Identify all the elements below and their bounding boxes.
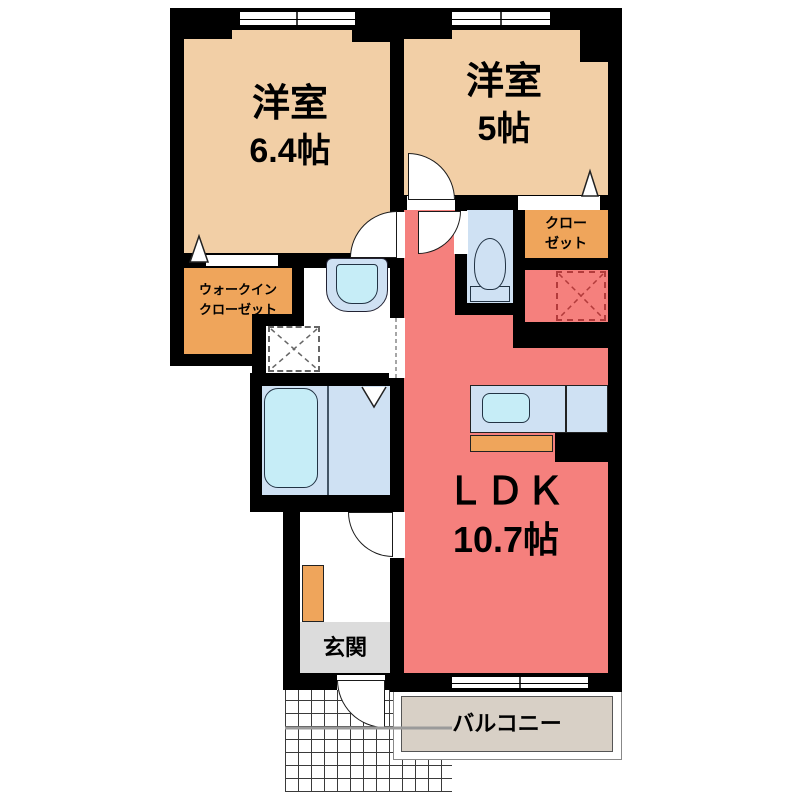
door-opening (206, 255, 278, 266)
bedroom1-label: 洋室 6.4帖 (195, 80, 385, 174)
kitchen-counter-divider (565, 385, 567, 433)
closet-label-line2: ゼット (523, 233, 609, 253)
washbasin-bowl (336, 264, 378, 304)
wall (608, 8, 622, 690)
wall (513, 258, 622, 270)
wic-label-line1: ウォークイン (184, 280, 292, 300)
closet-label: クロー ゼット (523, 213, 609, 254)
ldk-name: ＬＤＫ (408, 468, 604, 517)
wall (250, 378, 262, 512)
wall-pillar (352, 28, 390, 42)
window-balcony-sliding (452, 675, 588, 690)
window-bedroom2 (452, 10, 550, 27)
bedroom2-size: 5帖 (409, 107, 599, 151)
floorplan: 洋室 6.4帖 洋室 5帖 クロー ゼット ウォークイン クローゼット ＬＤＫ … (0, 0, 800, 800)
walk-in-closet-label: ウォークイン クローゼット (184, 280, 292, 319)
door-opening-sliding (389, 318, 405, 378)
entrance-label: 玄関 (300, 634, 390, 663)
refrigerator-space (556, 271, 606, 321)
wall-pillar (404, 27, 452, 39)
bedroom2-label: 洋室 5帖 (409, 58, 599, 152)
wall-pillar (580, 27, 608, 62)
bathtub (264, 388, 318, 488)
ldk-size: 10.7帖 (408, 517, 604, 564)
wall (292, 253, 304, 326)
bedroom1-size: 6.4帖 (195, 129, 385, 173)
wall (170, 8, 184, 270)
wall (283, 512, 300, 690)
kitchen-counter-front (470, 435, 553, 452)
wic-label-line2: クローゼット (184, 300, 292, 320)
door-opening (518, 196, 600, 210)
bathroom-divider-line (327, 386, 329, 495)
balcony-label: バルコニー (398, 710, 616, 739)
closet-label-line1: クロー (523, 213, 609, 233)
washing-machine-space (268, 326, 320, 372)
window-bedroom1 (240, 10, 355, 27)
shoe-cabinet (302, 565, 324, 622)
wall (555, 433, 608, 462)
wall (513, 322, 622, 348)
wall (250, 495, 392, 512)
bedroom1-name: 洋室 (195, 80, 385, 129)
wall (455, 303, 525, 315)
kitchen-sink (482, 393, 530, 423)
wall (170, 253, 184, 366)
wall-pillar (184, 25, 232, 39)
toilet-bowl (474, 238, 506, 290)
wall (250, 373, 392, 386)
ldk-label: ＬＤＫ 10.7帖 (408, 468, 604, 564)
bedroom2-name: 洋室 (409, 58, 599, 107)
